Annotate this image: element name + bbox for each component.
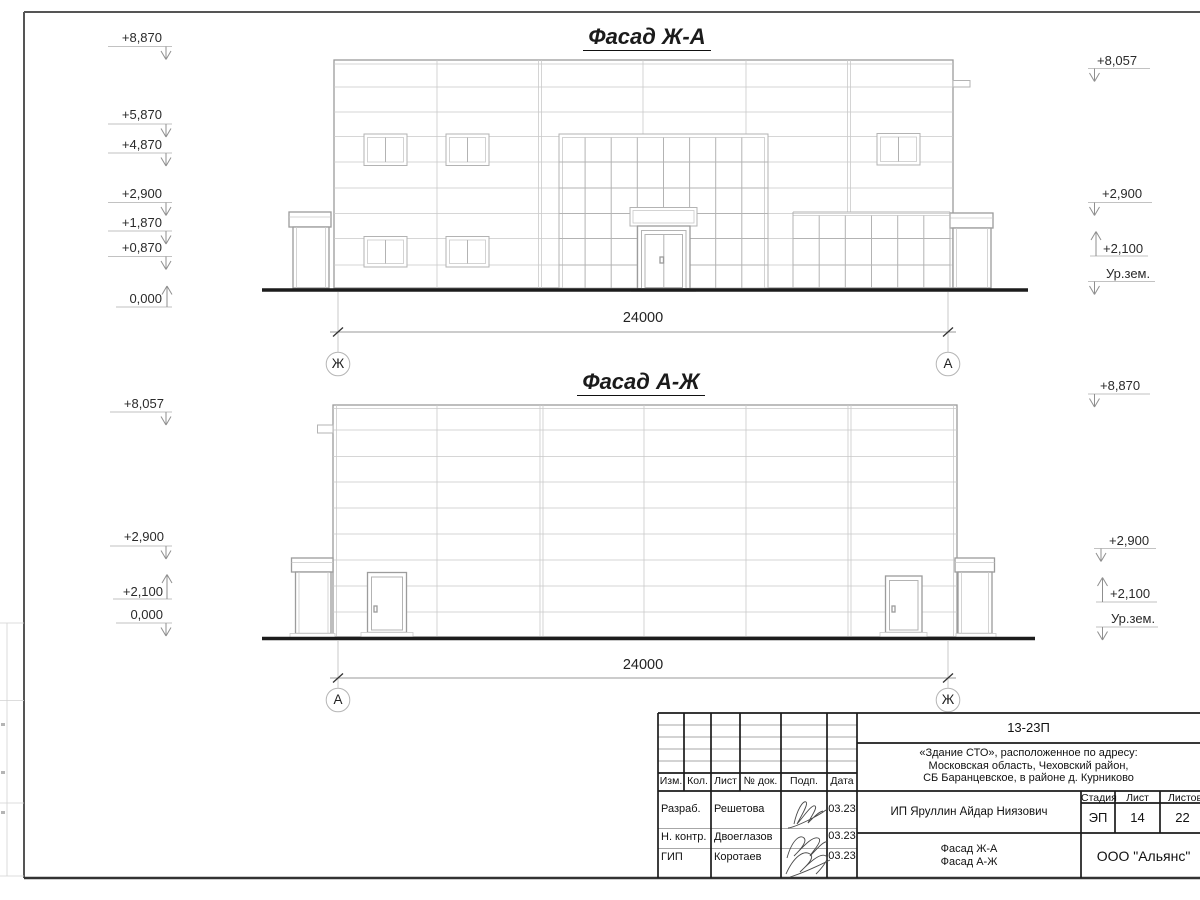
elevation-label: +2,900 [92,530,164,544]
facade2-title: Фасад А-Ж [536,370,746,396]
elevation-label: +2,100 [1110,587,1150,601]
elevation-label: +0,870 [90,241,162,255]
facade1-title: Фасад Ж-А [542,25,752,51]
titleblock-role: ГИП [661,852,683,864]
elevation-label: +4,870 [90,138,162,152]
facade1-drawing [262,60,1028,291]
dimension-label: 24000 [583,311,703,327]
elevation-mark-icon [161,412,171,425]
facade1-entrance-door [631,226,696,291]
elevation-mark-icon [1098,627,1108,640]
titleblock-col-ndok: № док. [740,776,781,787]
elevation-mark-icon [1091,232,1101,257]
elevation-mark-icon [1090,394,1100,407]
titleblock-date: 03.23 [827,831,857,843]
titleblock-col-list: Лист [711,776,740,787]
elevation-mark-icon [1098,578,1108,603]
facade2-drawing [262,405,1035,639]
elevation-mark-icon [161,546,171,559]
elevation-label: +8,870 [1100,379,1140,393]
axis-label: Ж [326,357,350,372]
titleblock-stage-label: Стадия [1081,793,1115,804]
titleblock-name: Решетова [714,804,764,816]
elevation-mark-icon [1090,282,1100,295]
facade2-left-door [361,573,413,638]
elevation-mark-icon [161,257,171,270]
elevation-label: Ур.зем. [1106,267,1150,281]
titleblock-drawing-title-line2: Фасад А-Ж [857,857,1081,869]
titleblock-doc-code: 13-23П [857,721,1200,735]
elevation-mark-icon [161,47,171,60]
elevation-label: +2,900 [90,187,162,201]
titleblock-date: 03.23 [827,851,857,863]
elevation-label: 0,000 [90,292,162,306]
elevation-label: +8,057 [1097,54,1137,68]
titleblock-col-izm: Изм. [658,776,684,787]
elevation-mark-icon [162,575,172,600]
elevation-mark-icon [1096,549,1106,562]
elevation-mark-icon [1090,203,1100,216]
titleblock-name: Коротаев [714,852,762,864]
titleblock-sheets-value: 22 [1160,811,1200,825]
titleblock-sheet-value: 14 [1115,811,1160,825]
titleblock-role: Разраб. [661,804,701,816]
titleblock-sheet-label: Лист [1115,793,1160,804]
elevation-mark-icon [161,203,171,216]
titleblock-client: ИП Яруллин Айдар Ниязович [857,806,1081,818]
elevation-label: +2,100 [1103,242,1143,256]
titleblock-address-line2: Московская область, Чеховский район, [860,761,1197,773]
dimension-label: 24000 [583,658,703,674]
signature-razrab [788,802,826,828]
titleblock-company: ООО "Альянс" [1081,849,1200,864]
elevation-label: +5,870 [90,108,162,122]
elevation-mark-icon [161,231,171,244]
titleblock-name: Двоеглазов [714,832,772,844]
signature-gip [786,853,830,877]
titleblock-col-kol: Кол. [684,776,711,787]
entrance-sign [630,208,697,227]
elevation-mark-icon [162,286,172,307]
titleblock-col-data: Дата [827,776,857,787]
titleblock-address-line3: СБ Баранцевское, в районе д. Курниково [860,773,1197,785]
elevation-mark-icon [161,153,171,166]
elevation-label: +8,057 [92,397,164,411]
elevation-mark-icon [1090,69,1100,82]
elevation-mark-icon [161,124,171,137]
signature-nkontr [787,837,828,858]
elevation-label: +1,870 [90,216,162,230]
titleblock-address-line1: «Здание СТО», расположенное по адресу: [860,748,1197,760]
titleblock-role: Н. контр. [661,832,706,844]
axis-label: А [326,693,350,708]
elevation-label: 0,000 [91,608,163,622]
elevation-label: Ур.зем. [1111,612,1155,626]
elevation-mark-icon [161,623,171,636]
signatures [786,802,830,877]
titleblock-date: 03.23 [827,804,857,816]
axis-label: Ж [936,693,960,708]
titleblock-stage-value: ЭП [1081,811,1115,825]
elevation-label: +2,900 [1109,534,1149,548]
elevation-label: +2,900 [1102,187,1142,201]
facade1-dimension [326,292,960,376]
facade2-right-door [880,576,927,637]
titleblock-sheets-label: Листов [1160,793,1200,804]
titleblock-col-podp: Подп. [781,776,827,787]
facade2-dimension [326,641,960,712]
drawing-sheet: Фасад Ж-А Фасад А-Ж +8,870 +5,870 +4,870… [0,0,1200,900]
elevation-label: +2,100 [91,585,163,599]
titleblock-drawing-title-line1: Фасад Ж-А [857,844,1081,856]
left-edge-artifacts [0,623,24,876]
axis-label: А [936,357,960,372]
elevation-label: +8,870 [90,31,162,45]
